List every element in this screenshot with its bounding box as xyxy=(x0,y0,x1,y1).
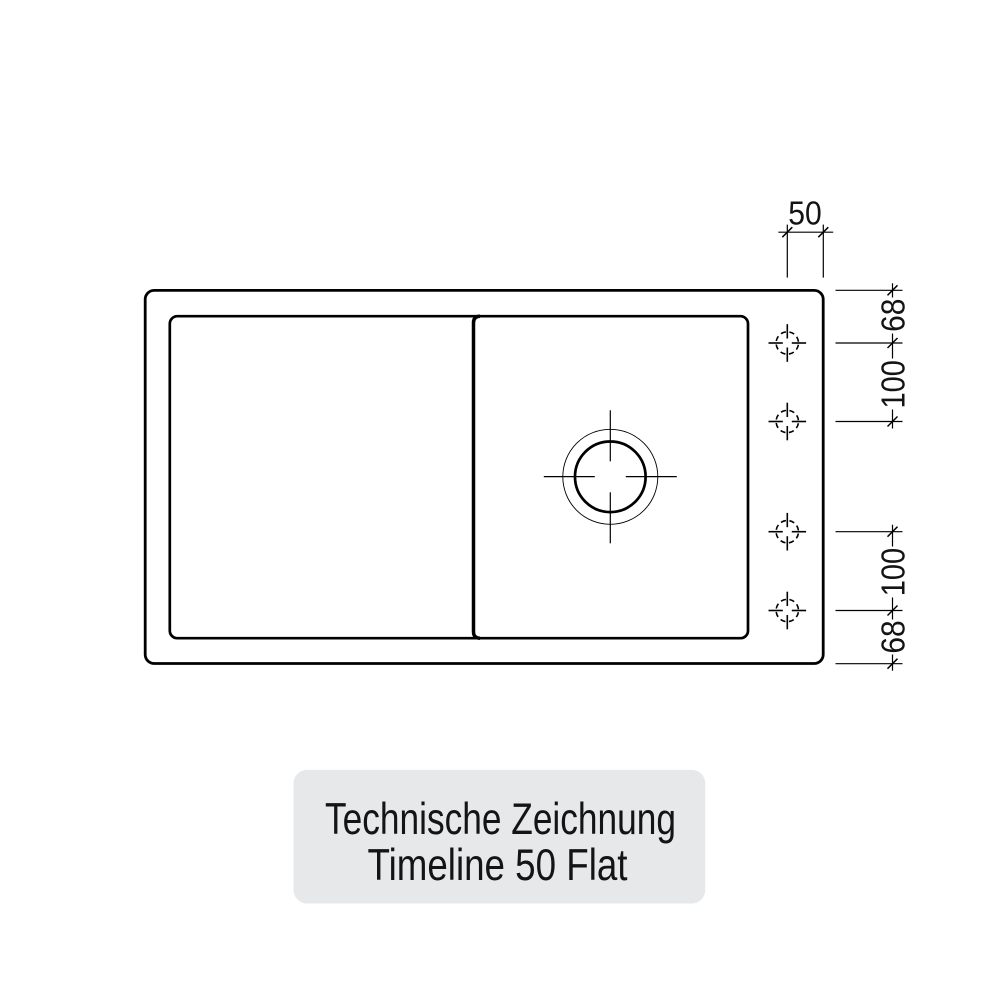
svg-text:68: 68 xyxy=(875,299,912,332)
svg-text:100: 100 xyxy=(875,548,912,596)
svg-text:100: 100 xyxy=(875,360,912,408)
svg-text:Timeline 50 Flat: Timeline 50 Flat xyxy=(368,841,629,890)
svg-text:68: 68 xyxy=(875,620,912,653)
svg-text:Technische Zeichnung: Technische Zeichnung xyxy=(325,795,676,844)
svg-text:50: 50 xyxy=(788,195,822,232)
